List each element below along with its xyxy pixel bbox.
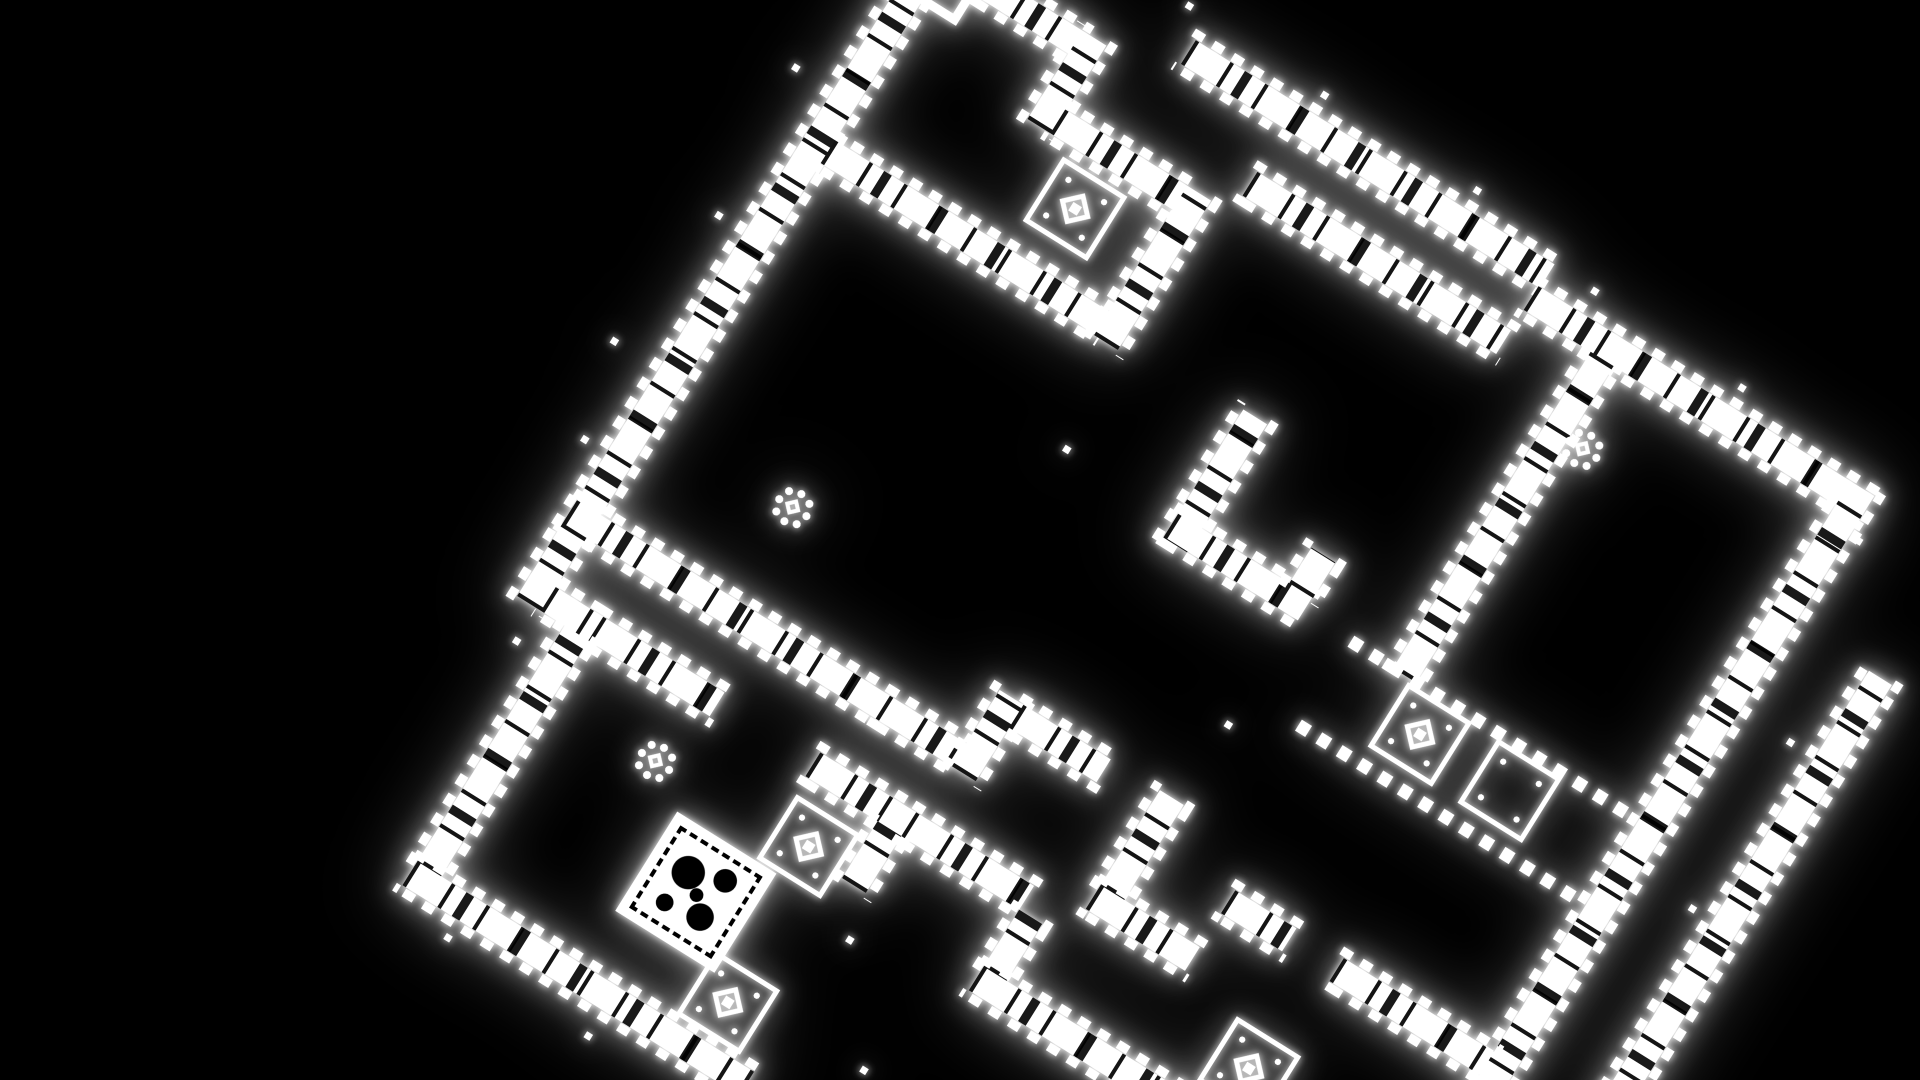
debris-speck bbox=[1786, 737, 1796, 747]
mottled-block bbox=[615, 811, 776, 972]
wall-segment bbox=[562, 0, 920, 538]
debris-speck bbox=[1472, 186, 1482, 196]
debris-speck bbox=[580, 434, 590, 444]
wall-segment bbox=[417, 626, 588, 877]
debris-speck bbox=[1062, 444, 1072, 454]
wall-segment bbox=[968, 967, 1242, 1080]
wall-segment bbox=[1221, 890, 1297, 952]
debris-speck bbox=[791, 62, 801, 72]
wall-segment bbox=[1393, 351, 1615, 683]
game-viewport[interactable] bbox=[0, 0, 1920, 1080]
wall-segment bbox=[1086, 885, 1200, 971]
debris-speck bbox=[845, 935, 855, 945]
wall-segment bbox=[901, 812, 1034, 910]
wall-segment bbox=[1009, 704, 1112, 782]
debris-speck bbox=[1185, 1, 1195, 11]
debris-speck bbox=[1320, 91, 1330, 101]
gear-flower-pickup[interactable] bbox=[764, 478, 822, 536]
debris-speck bbox=[1737, 383, 1747, 393]
debris-speck bbox=[443, 933, 453, 943]
pressure-plate[interactable] bbox=[1196, 1016, 1301, 1080]
debris-speck bbox=[609, 336, 619, 346]
debris-speck bbox=[512, 636, 522, 646]
wall-segment bbox=[588, 617, 724, 716]
debris-speck bbox=[1224, 720, 1234, 730]
debris-speck bbox=[1590, 286, 1600, 296]
debris-speck bbox=[1687, 904, 1697, 914]
gear-flower-pickup[interactable] bbox=[626, 732, 684, 790]
debris-speck bbox=[859, 1066, 869, 1076]
wall-segment bbox=[1329, 958, 1494, 1075]
debris-speck bbox=[714, 211, 724, 221]
dungeon-map bbox=[81, 0, 1920, 1080]
debris-speck bbox=[583, 1031, 593, 1041]
